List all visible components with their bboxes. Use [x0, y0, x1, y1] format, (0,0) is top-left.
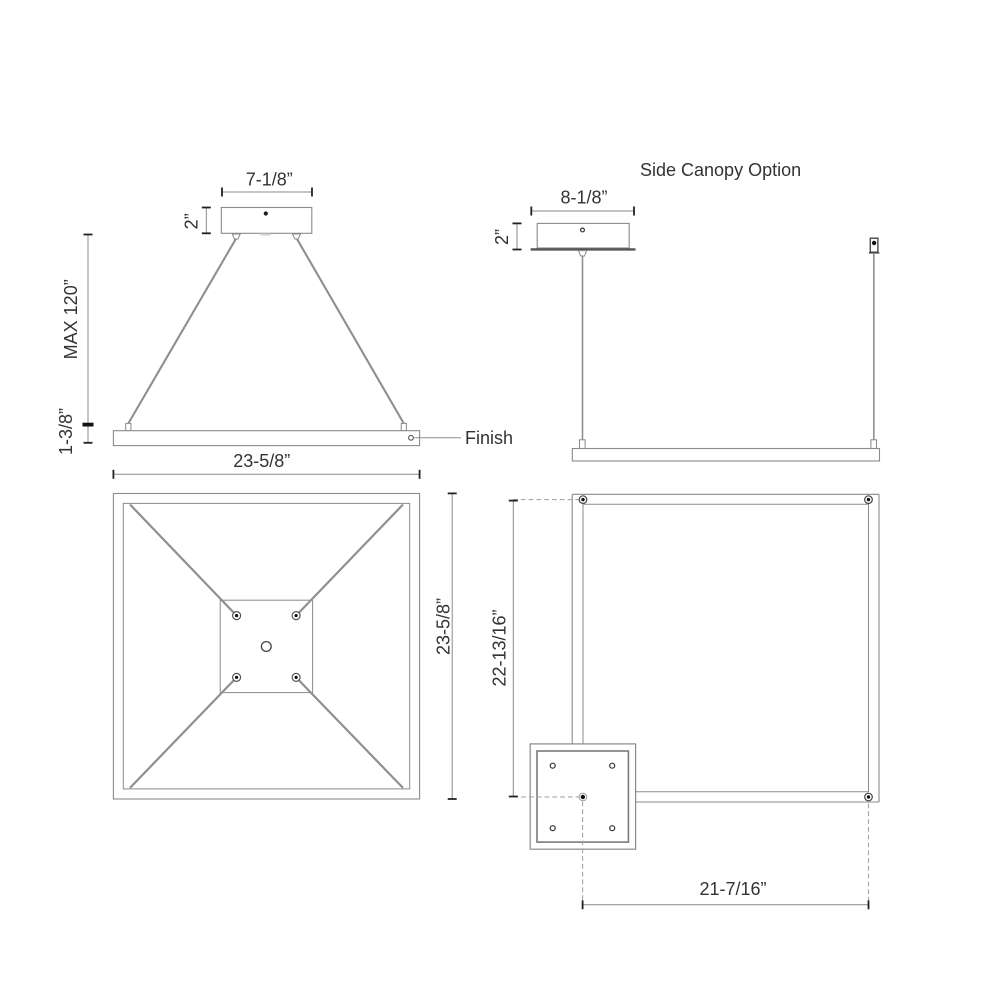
svg-text:22-13/16”: 22-13/16”	[489, 609, 509, 686]
svg-text:21-7/16”: 21-7/16”	[699, 879, 766, 899]
svg-text:MAX 120”: MAX 120”	[61, 279, 81, 359]
svg-text:2”: 2”	[492, 229, 512, 245]
svg-text:1-3/8”: 1-3/8”	[56, 408, 76, 455]
svg-text:23-5/8”: 23-5/8”	[233, 451, 290, 471]
svg-text:8-1/8”: 8-1/8”	[560, 187, 607, 207]
svg-text:2”: 2”	[181, 213, 201, 229]
svg-text:Side Canopy Option: Side Canopy Option	[640, 160, 801, 180]
svg-text:7-1/8”: 7-1/8”	[246, 170, 293, 190]
svg-text:Finish: Finish	[465, 428, 513, 448]
svg-text:23-5/8”: 23-5/8”	[433, 598, 453, 655]
